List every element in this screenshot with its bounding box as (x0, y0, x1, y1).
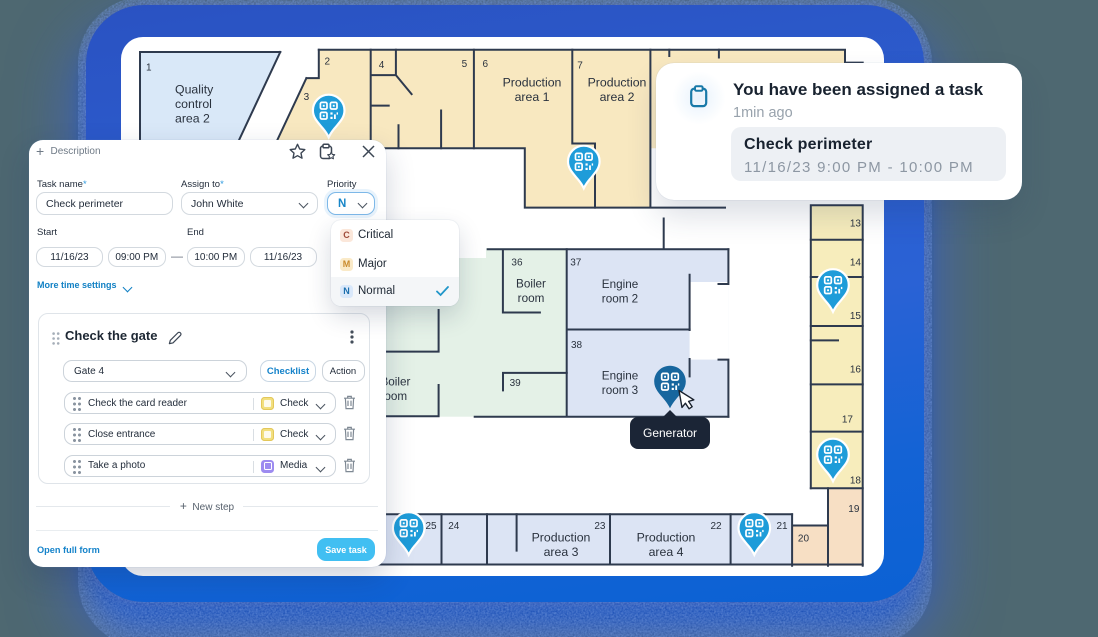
svg-text:area 3: area 3 (544, 545, 579, 559)
svg-text:room: room (518, 292, 545, 305)
svg-text:Production: Production (532, 531, 591, 545)
svg-text:5: 5 (462, 59, 468, 70)
svg-text:6: 6 (483, 59, 489, 70)
svg-text:area 1: area 1 (515, 90, 550, 104)
svg-text:Engine: Engine (602, 369, 638, 382)
svg-text:7: 7 (577, 60, 583, 71)
svg-text:24: 24 (448, 521, 460, 532)
svg-text:area 2: area 2 (600, 90, 635, 104)
svg-text:15: 15 (850, 311, 862, 322)
svg-text:14: 14 (850, 257, 862, 268)
svg-text:Boiler: Boiler (516, 278, 546, 291)
svg-text:38: 38 (571, 340, 583, 351)
svg-text:4: 4 (379, 60, 385, 71)
svg-text:23: 23 (594, 521, 606, 532)
svg-text:room 2: room 2 (602, 293, 638, 306)
svg-text:17: 17 (842, 415, 854, 426)
svg-text:39: 39 (510, 378, 522, 389)
svg-text:20: 20 (798, 533, 810, 544)
svg-text:Production: Production (503, 76, 562, 90)
svg-text:Engine: Engine (602, 278, 638, 291)
svg-text:21: 21 (776, 521, 788, 532)
svg-text:18: 18 (850, 476, 862, 487)
svg-text:22: 22 (710, 521, 722, 532)
svg-text:36: 36 (511, 258, 523, 269)
svg-text:25: 25 (425, 521, 437, 532)
svg-text:control: control (175, 97, 212, 111)
svg-text:1: 1 (146, 63, 152, 74)
svg-text:area 4: area 4 (649, 545, 684, 559)
svg-text:13: 13 (850, 218, 862, 229)
svg-text:Production: Production (588, 76, 647, 90)
svg-text:19: 19 (848, 504, 860, 515)
svg-text:3: 3 (304, 92, 310, 103)
svg-text:16: 16 (850, 364, 862, 375)
svg-text:37: 37 (570, 258, 582, 269)
svg-text:room 3: room 3 (602, 384, 638, 397)
svg-text:Production: Production (637, 531, 696, 545)
svg-text:Quality: Quality (175, 83, 214, 97)
svg-text:2: 2 (325, 57, 331, 68)
svg-text:area 2: area 2 (175, 112, 210, 126)
